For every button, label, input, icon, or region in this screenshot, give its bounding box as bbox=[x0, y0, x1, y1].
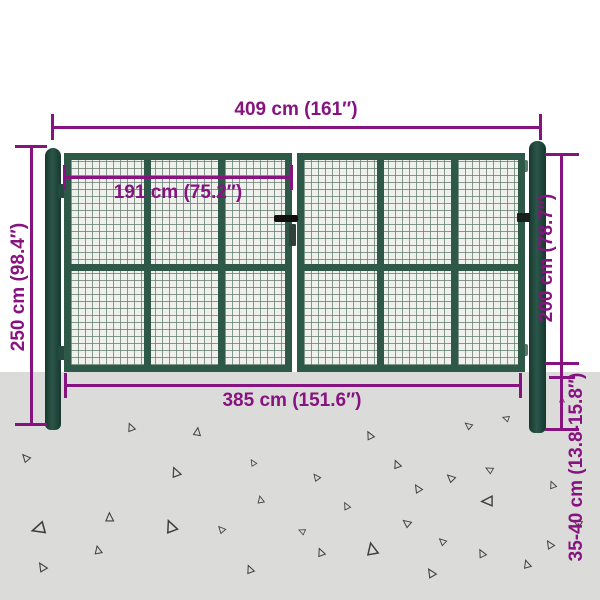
gate-mullion bbox=[377, 160, 384, 365]
dimension-line-inner-width bbox=[64, 176, 292, 179]
gate-latch-keep bbox=[517, 213, 530, 222]
gate-lock-plate bbox=[289, 224, 296, 246]
dimension-line-post-height bbox=[30, 146, 33, 426]
dimension-label-total-width: 409 cm (161″) bbox=[146, 99, 446, 121]
dimension-tick bbox=[539, 114, 542, 140]
dimension-line-gate-height bbox=[560, 154, 563, 364]
product-dimension-diagram: 409 cm (161″) 191 cm (75.2″) 385 cm (151… bbox=[0, 0, 600, 600]
dimension-line-ground-depth bbox=[560, 364, 563, 430]
gate-middle-rail bbox=[304, 264, 518, 271]
gate-leaf-right bbox=[297, 153, 525, 372]
dimension-tick bbox=[519, 373, 522, 398]
dimension-line-bottom-width bbox=[65, 384, 521, 387]
dimension-tick bbox=[64, 373, 67, 398]
dimension-tick bbox=[15, 145, 47, 148]
dimension-line-top bbox=[52, 126, 541, 129]
dimension-label-inner-width: 191 cm (75.2″) bbox=[28, 182, 328, 204]
gate-handle bbox=[274, 215, 298, 222]
gate-mullion bbox=[451, 160, 458, 365]
gate-middle-rail bbox=[71, 264, 285, 271]
dimension-tick bbox=[51, 114, 54, 140]
dimension-label-text: 250 cm (98.4″) bbox=[8, 223, 30, 351]
dimension-label-bottom-width: 385 cm (151.6″) bbox=[142, 390, 442, 412]
dimension-label-text: 35-40 cm (13.8-15.8″) bbox=[566, 373, 588, 562]
dimension-tick bbox=[15, 423, 47, 426]
dimension-label-text: 200 cm (78.7″) bbox=[536, 194, 558, 322]
dimension-tick bbox=[545, 153, 579, 156]
